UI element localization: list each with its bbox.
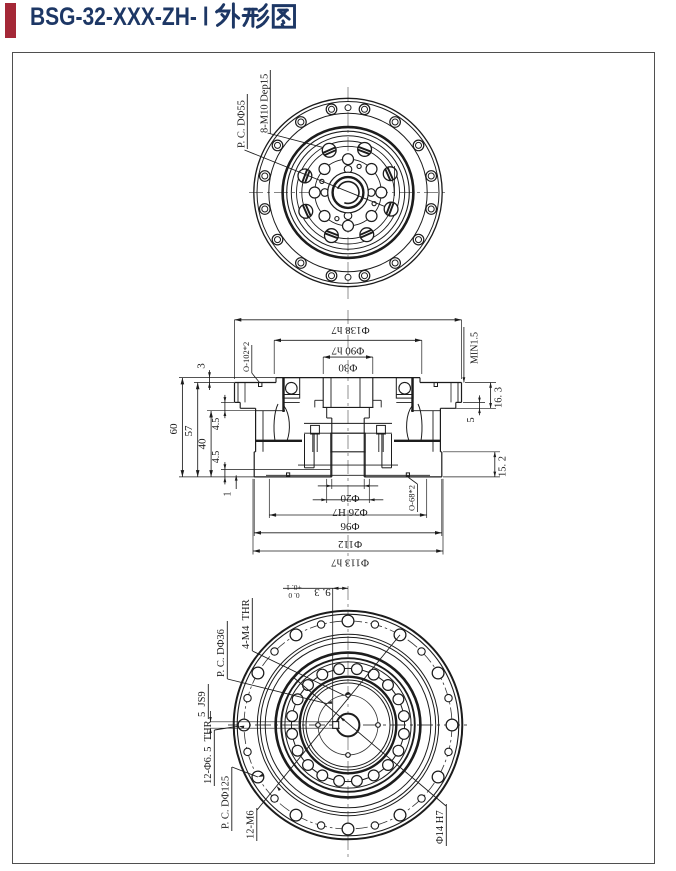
svg-text:Φ14 H7: Φ14 H7 — [435, 810, 446, 844]
svg-text:Φ96: Φ96 — [340, 520, 360, 532]
svg-text:1: 1 — [223, 492, 234, 497]
svg-text:40: 40 — [197, 438, 209, 450]
svg-text:4-M4 THR: 4-M4 THR — [241, 599, 252, 649]
svg-text:4.5: 4.5 — [211, 418, 222, 431]
svg-text:5 JS9: 5 JS9 — [197, 691, 208, 717]
svg-text:MIN1.5: MIN1.5 — [470, 332, 481, 364]
svg-text:5: 5 — [466, 417, 477, 422]
svg-text:60: 60 — [168, 423, 180, 435]
svg-text:Φ90 h7: Φ90 h7 — [331, 345, 364, 357]
svg-text:9. 3: 9. 3 — [314, 586, 331, 598]
svg-text:12-M6: 12-M6 — [246, 810, 257, 839]
svg-text:15. 2: 15. 2 — [498, 456, 509, 477]
svg-text:0. 0: 0. 0 — [288, 591, 300, 600]
svg-text:3: 3 — [196, 363, 208, 369]
svg-text:Φ20: Φ20 — [340, 492, 360, 504]
svg-text:+0. 1: +0. 1 — [286, 583, 302, 592]
svg-text:Φ30: Φ30 — [338, 361, 358, 373]
svg-text:Φ112: Φ112 — [338, 538, 362, 550]
svg-text:O-102*2: O-102*2 — [241, 342, 251, 372]
svg-text:P. C. DΦ55: P. C. DΦ55 — [237, 100, 248, 148]
svg-text:P. C. DΦ125: P. C. DΦ125 — [221, 776, 232, 829]
svg-text:Φ113 h7: Φ113 h7 — [331, 556, 369, 568]
svg-text:Φ138 h7: Φ138 h7 — [331, 324, 370, 336]
svg-text:4.5: 4.5 — [211, 451, 222, 464]
svg-text:P. C. DΦ36: P. C. DΦ36 — [216, 629, 227, 677]
svg-text:57: 57 — [183, 425, 195, 437]
svg-text:16. 3: 16. 3 — [494, 387, 505, 408]
svg-text:O-68*2: O-68*2 — [407, 485, 417, 511]
svg-text:12-Φ6. 5 THR: 12-Φ6. 5 THR — [203, 720, 214, 784]
svg-text:Φ26 H7: Φ26 H7 — [332, 506, 368, 518]
svg-text:8-M10 Dep15: 8-M10 Dep15 — [260, 74, 271, 133]
